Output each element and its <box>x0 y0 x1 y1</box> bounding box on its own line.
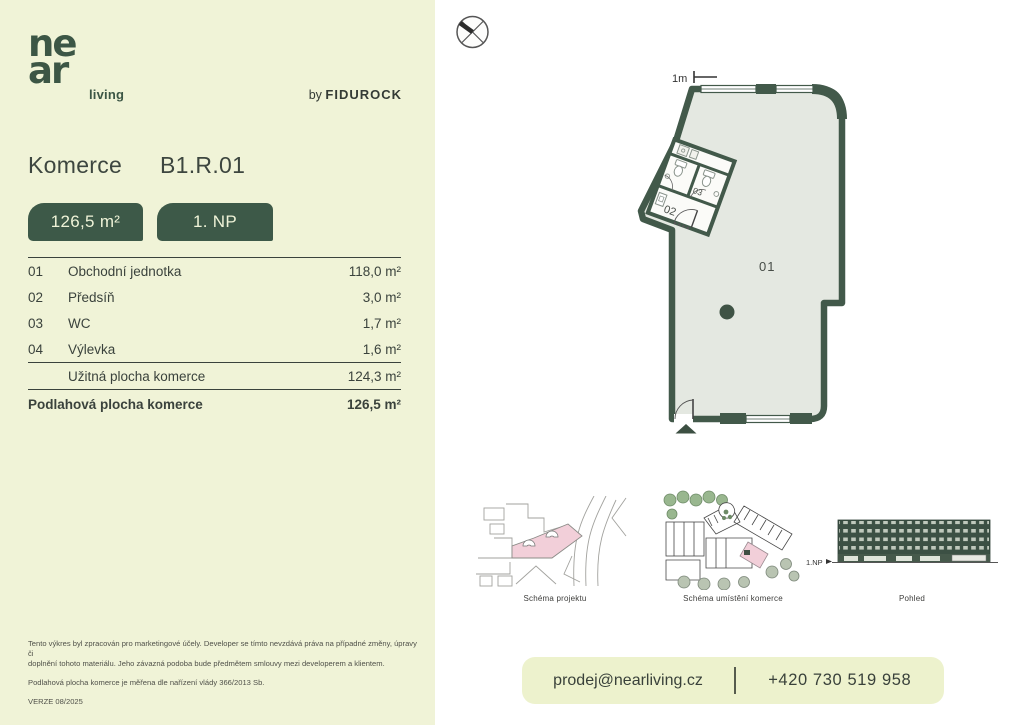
area-badge: 126,5 m² <box>28 203 143 241</box>
page-title: Komerce <box>28 152 122 179</box>
scale-bar: 1m <box>672 71 717 85</box>
figure-caption: Schéma umístění komerce <box>660 594 806 603</box>
table-row: 04 Výlevka 1,6 m² <box>28 336 401 362</box>
rooms-table: 01 Obchodní jednotka 118,0 m² 02 Předsíň… <box>28 257 401 418</box>
figure-elevation: 1.NP <box>802 510 1002 578</box>
floor-plan: 1m <box>560 55 870 450</box>
measure-note: Podlahová plocha komerce je měřena dle n… <box>28 678 418 688</box>
svg-text:1m: 1m <box>672 73 687 85</box>
contact-phone: +420 730 519 958 <box>736 657 945 704</box>
version-label: VERZE 08/2025 <box>28 697 418 707</box>
contact-bar: prodej@nearliving.cz +420 730 519 958 <box>522 657 944 704</box>
column-dot <box>720 305 735 320</box>
table-row: 01 Obchodní jednotka 118,0 m² <box>28 258 401 284</box>
floor-marker-1np: 1.NP <box>806 558 823 567</box>
logo-living-label: living <box>89 87 124 102</box>
plan-room-label-01: 01 <box>759 259 775 274</box>
byline: by FIDUROCK <box>300 87 402 102</box>
flyer-page: near living by FIDUROCK Komerce B1.R.01 … <box>0 0 1024 725</box>
entrance-arrow <box>676 424 697 434</box>
table-row: 02 Předsíň 3,0 m² <box>28 284 401 310</box>
logo-wordmark: near <box>28 30 158 85</box>
figure-project-schema <box>476 496 634 588</box>
floor-badge: 1. NP <box>157 203 273 241</box>
fidurock-brand: FIDUROCK <box>325 87 402 102</box>
window-band-top <box>701 84 813 94</box>
disclaimer: Tento výkres byl zpracován pro marketing… <box>28 639 418 707</box>
total-row: Podlahová plocha komerce 126,5 m² <box>28 389 401 418</box>
figure-caption: Schéma projektu <box>476 594 634 603</box>
floor-marker-arrow <box>826 559 832 564</box>
contact-email: prodej@nearliving.cz <box>522 657 734 704</box>
near-living-logo: near living <box>28 30 158 108</box>
compass-icon <box>450 10 495 55</box>
unit-outline <box>641 89 842 419</box>
project-highlight <box>512 524 582 558</box>
unit-code: B1.R.01 <box>160 152 245 179</box>
figure-caption: Pohled <box>822 594 1002 603</box>
table-row: 03 WC 1,7 m² <box>28 310 401 336</box>
subtotal-row: Užitná plocha komerce 124,3 m² <box>28 362 401 389</box>
figure-location-schema <box>660 488 806 590</box>
